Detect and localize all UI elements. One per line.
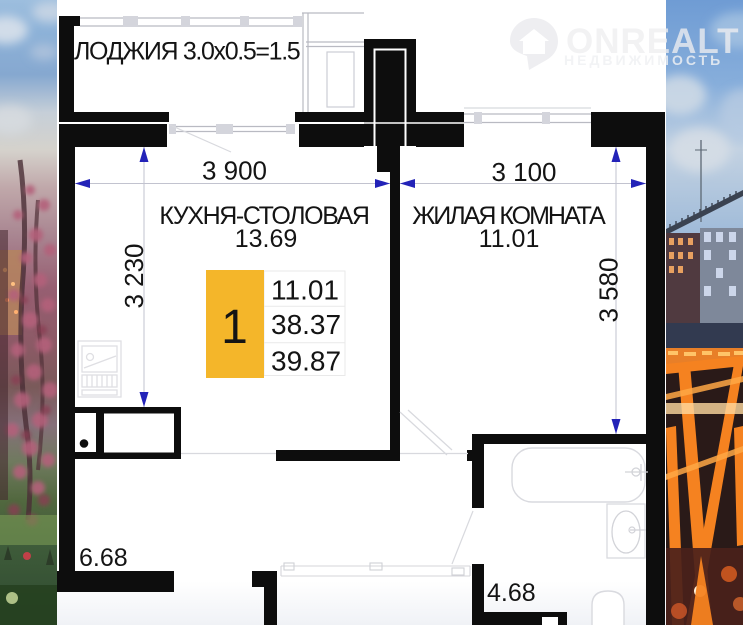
svg-text:6.68: 6.68 [79, 544, 128, 572]
svg-text:ЛОДЖИЯ 3.0х0.5=1.5: ЛОДЖИЯ 3.0х0.5=1.5 [74, 38, 300, 66]
svg-text:11.01: 11.01 [271, 275, 339, 306]
svg-text:3 230: 3 230 [119, 243, 149, 308]
svg-text:11.01: 11.01 [479, 225, 540, 253]
svg-text:13.69: 13.69 [235, 225, 298, 253]
svg-text:НЕДВИЖИМОСТЬ: НЕДВИЖИМОСТЬ [564, 52, 723, 68]
svg-text:1: 1 [221, 301, 248, 354]
svg-text:4.68: 4.68 [487, 579, 536, 607]
svg-text:38.37: 38.37 [271, 309, 341, 340]
svg-text:39.87: 39.87 [271, 346, 341, 377]
svg-text:3 900: 3 900 [202, 156, 267, 186]
svg-text:3 580: 3 580 [594, 257, 624, 322]
svg-text:3 100: 3 100 [491, 157, 556, 187]
